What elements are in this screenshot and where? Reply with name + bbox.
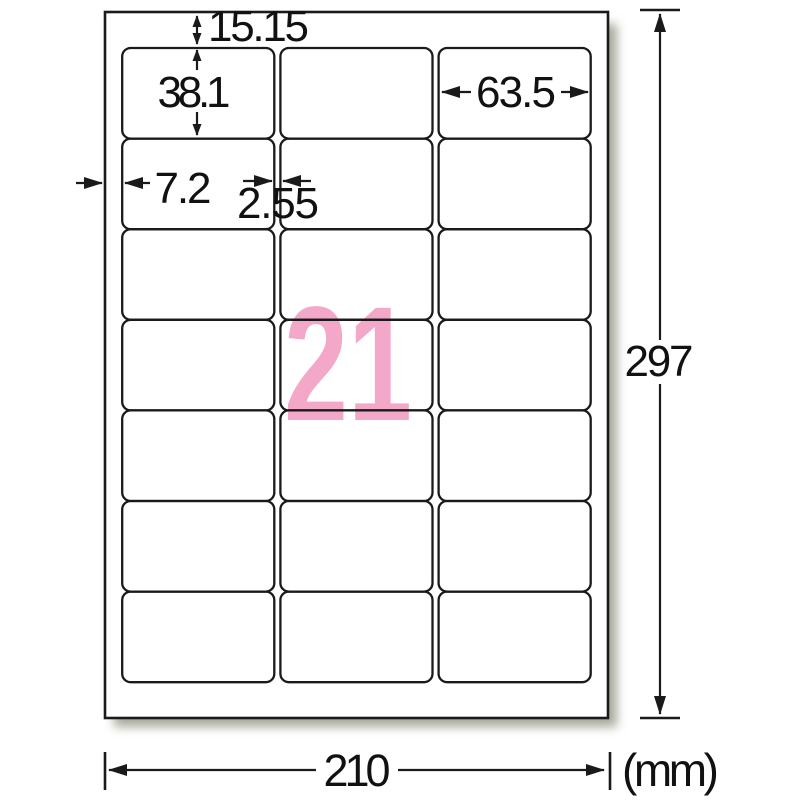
unit-label: (mm): [622, 744, 719, 796]
label-sheet-diagram: 21 15.15 38.1 63.5 7.2 2.55 297: [0, 0, 800, 800]
dim-sheet-height: 297: [625, 10, 694, 718]
dim-top-margin: 15.15: [197, 2, 309, 51]
label-count-number: 21: [284, 272, 412, 455]
diagram-stage: 21 15.15 38.1 63.5 7.2 2.55 297: [0, 0, 800, 800]
dim-column-gap-value: 2.55: [237, 179, 319, 228]
dim-top-margin-value: 15.15: [208, 2, 309, 51]
dim-label-height-value: 38.1: [158, 68, 231, 117]
dim-label-width-value: 63.5: [476, 68, 556, 117]
dim-left-margin-value: 7.2: [155, 164, 212, 213]
dim-sheet-height-value: 297: [625, 337, 694, 386]
dim-column-gap: 2.55: [237, 179, 319, 228]
dim-sheet-width: 210: [105, 745, 610, 796]
dim-sheet-width-value: 210: [324, 745, 391, 796]
